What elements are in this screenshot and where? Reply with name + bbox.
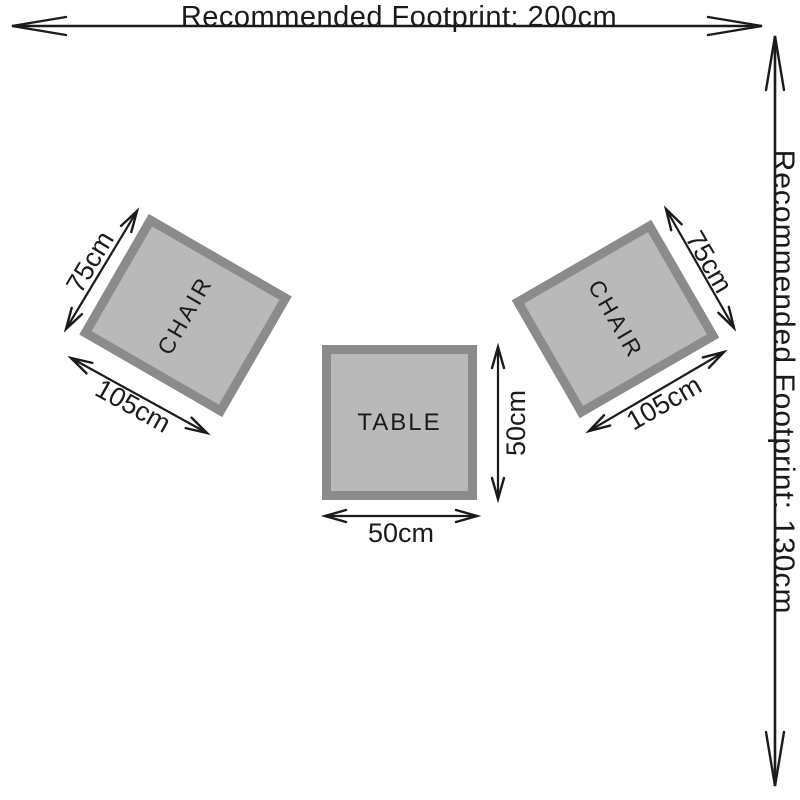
chair-left-label: CHAIR: [152, 271, 219, 359]
footprint-height-label: Recommended Footprint: 130cm: [766, 150, 800, 615]
footprint-width-label: Recommended Footprint: 200cm: [181, 0, 617, 34]
table-width-dimension-label: 50cm: [368, 518, 434, 548]
table-label: TABLE: [357, 409, 441, 437]
table-depth-dimension-label: 50cm: [501, 390, 531, 456]
table: TABLE: [322, 345, 477, 500]
chair-right-label: CHAIR: [582, 275, 649, 363]
footprint-diagram: Recommended Footprint: 200cm Recommended…: [0, 0, 800, 800]
